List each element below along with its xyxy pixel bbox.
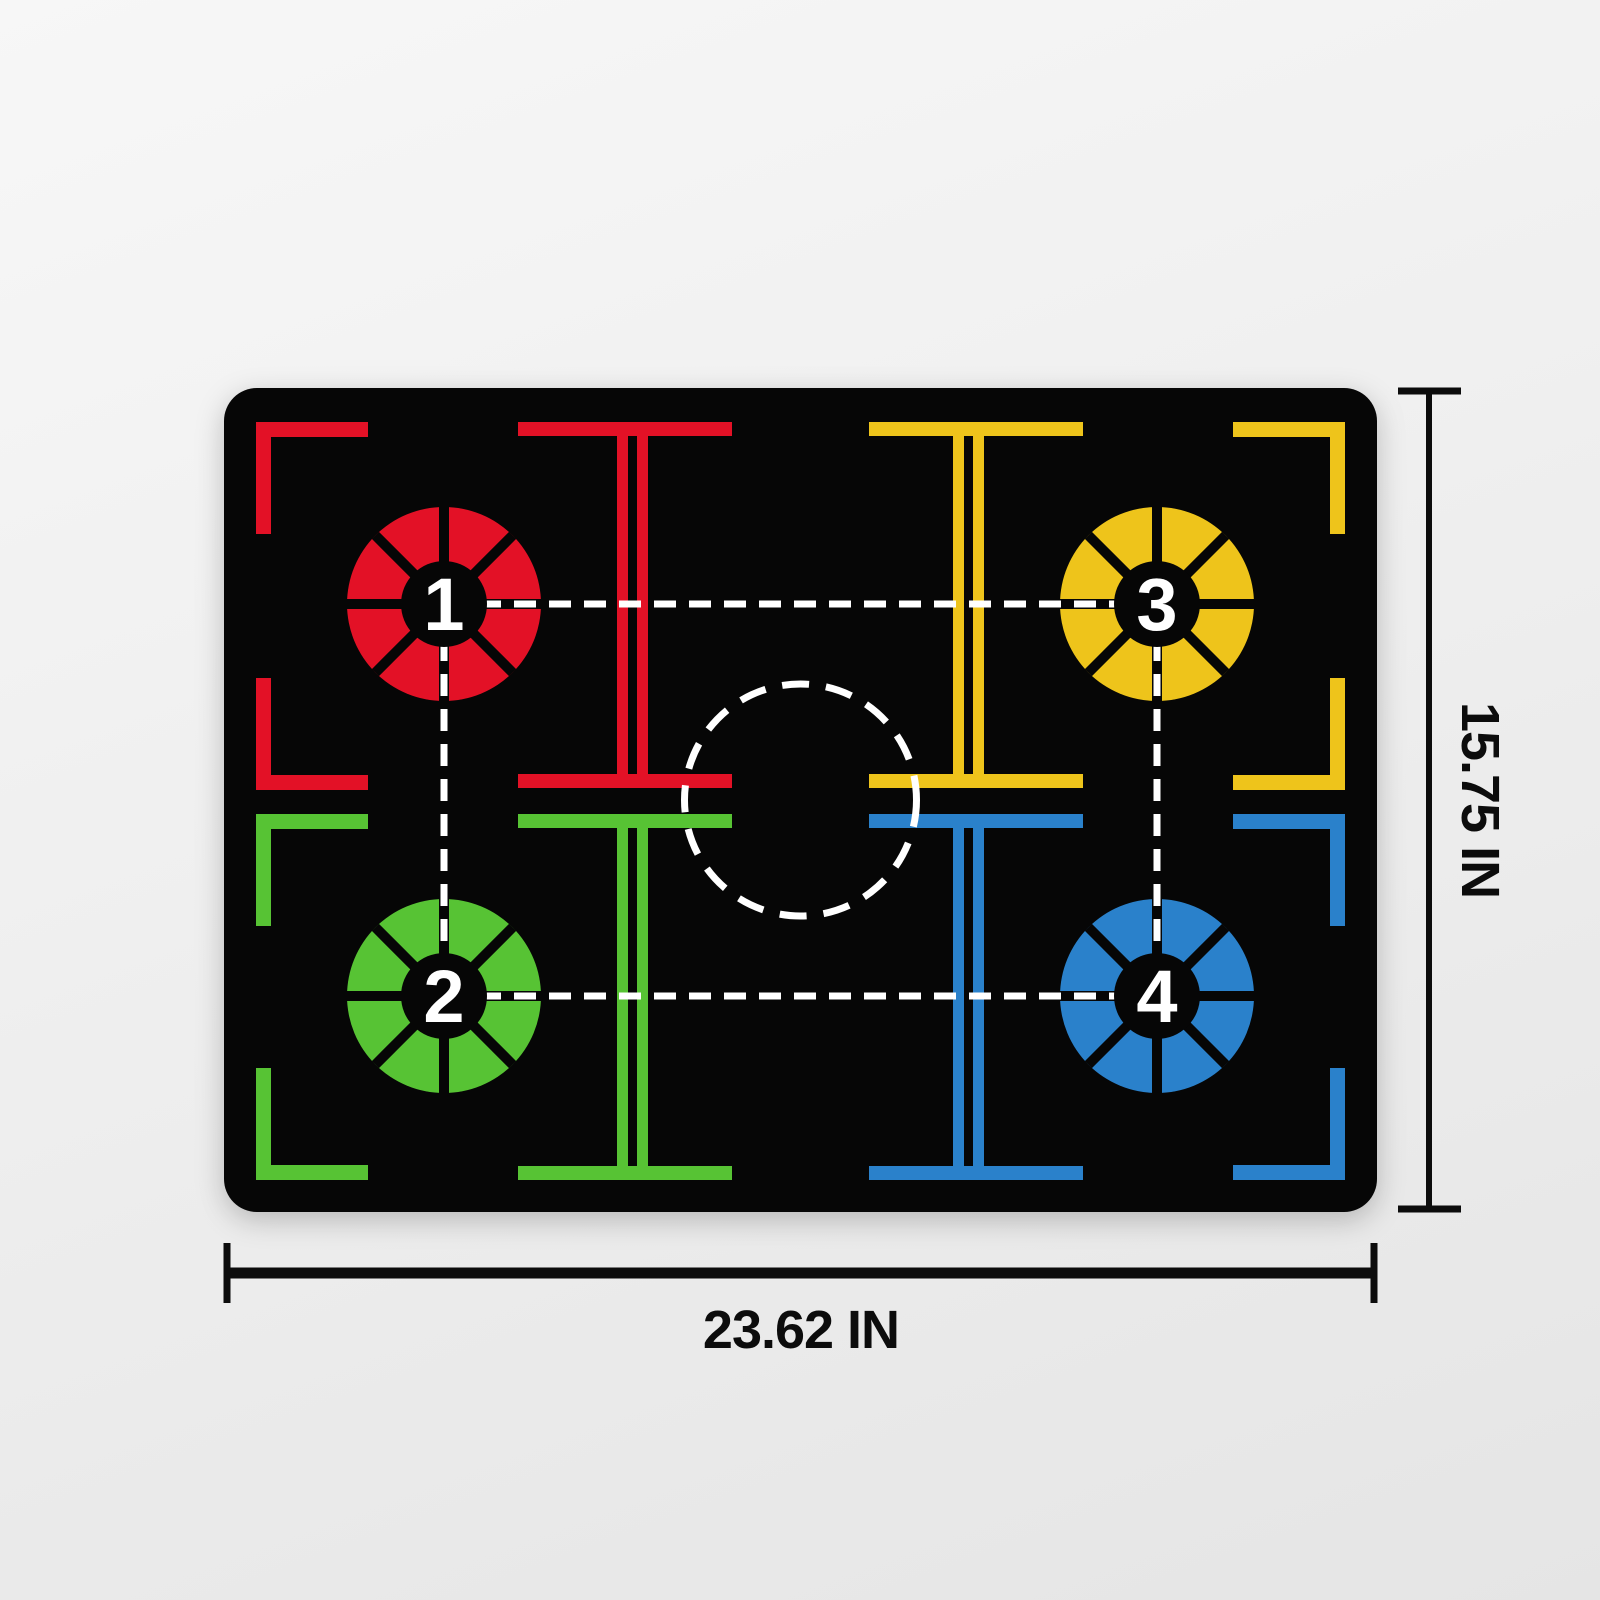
spot-number-1: 1 <box>423 563 464 646</box>
height-dimension: 15.75 IN <box>1398 389 1510 1211</box>
width-dimension-label: 23.62 IN <box>703 1300 899 1360</box>
width-dimension: 23.62 IN <box>226 1243 1375 1360</box>
product-diagram-stage: 1 2 3 4 15.75 IN 23.62 IN <box>0 0 1600 1600</box>
spot-number-2: 2 <box>423 955 464 1038</box>
spot-number-3: 3 <box>1136 563 1177 646</box>
mat-dimension-diagram: 1 2 3 4 15.75 IN 23.62 IN <box>0 0 1600 1600</box>
height-dimension-label: 15.75 IN <box>1450 702 1510 898</box>
mat <box>224 388 1377 1212</box>
spot-number-4: 4 <box>1136 955 1177 1038</box>
